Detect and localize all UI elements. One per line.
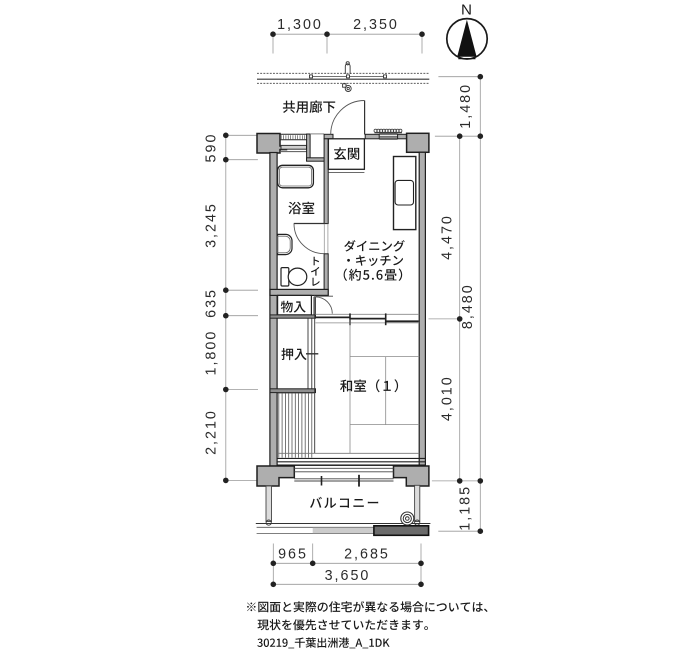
- svg-text:3,650: 3,650: [325, 568, 371, 584]
- svg-text:590: 590: [204, 133, 220, 163]
- svg-text:2,350: 2,350: [353, 17, 399, 33]
- svg-text:1,480: 1,480: [458, 83, 474, 129]
- svg-text:8,480: 8,480: [460, 283, 476, 329]
- svg-text:N: N: [461, 2, 472, 19]
- svg-text:4,010: 4,010: [440, 375, 456, 421]
- svg-text:2,210: 2,210: [203, 409, 219, 455]
- svg-text:1,300: 1,300: [277, 17, 323, 33]
- svg-text:2,685: 2,685: [344, 547, 390, 563]
- svg-text:635: 635: [204, 288, 220, 318]
- svg-text:1,185: 1,185: [458, 485, 474, 531]
- svg-text:1,800: 1,800: [203, 330, 219, 376]
- svg-text:3,245: 3,245: [203, 202, 219, 248]
- svg-text:4,470: 4,470: [440, 214, 456, 260]
- svg-text:965: 965: [278, 547, 308, 563]
